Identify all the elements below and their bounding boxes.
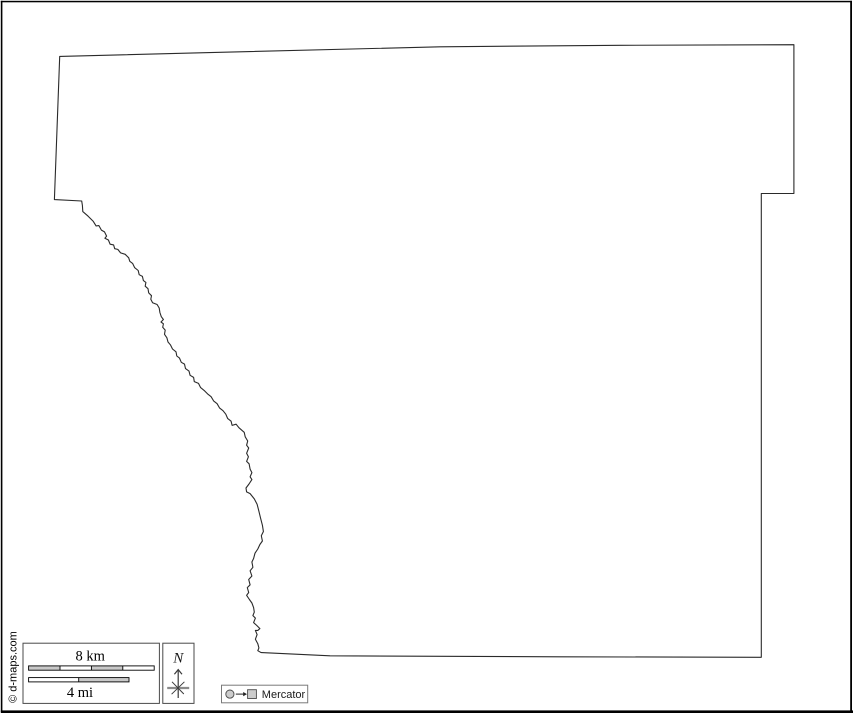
svg-text:8 km: 8 km xyxy=(75,648,105,664)
svg-text:N: N xyxy=(172,651,184,667)
svg-text:Mercator: Mercator xyxy=(262,689,306,701)
svg-text:© d-maps.com: © d-maps.com xyxy=(8,631,20,703)
svg-text:4 mi: 4 mi xyxy=(67,685,93,701)
